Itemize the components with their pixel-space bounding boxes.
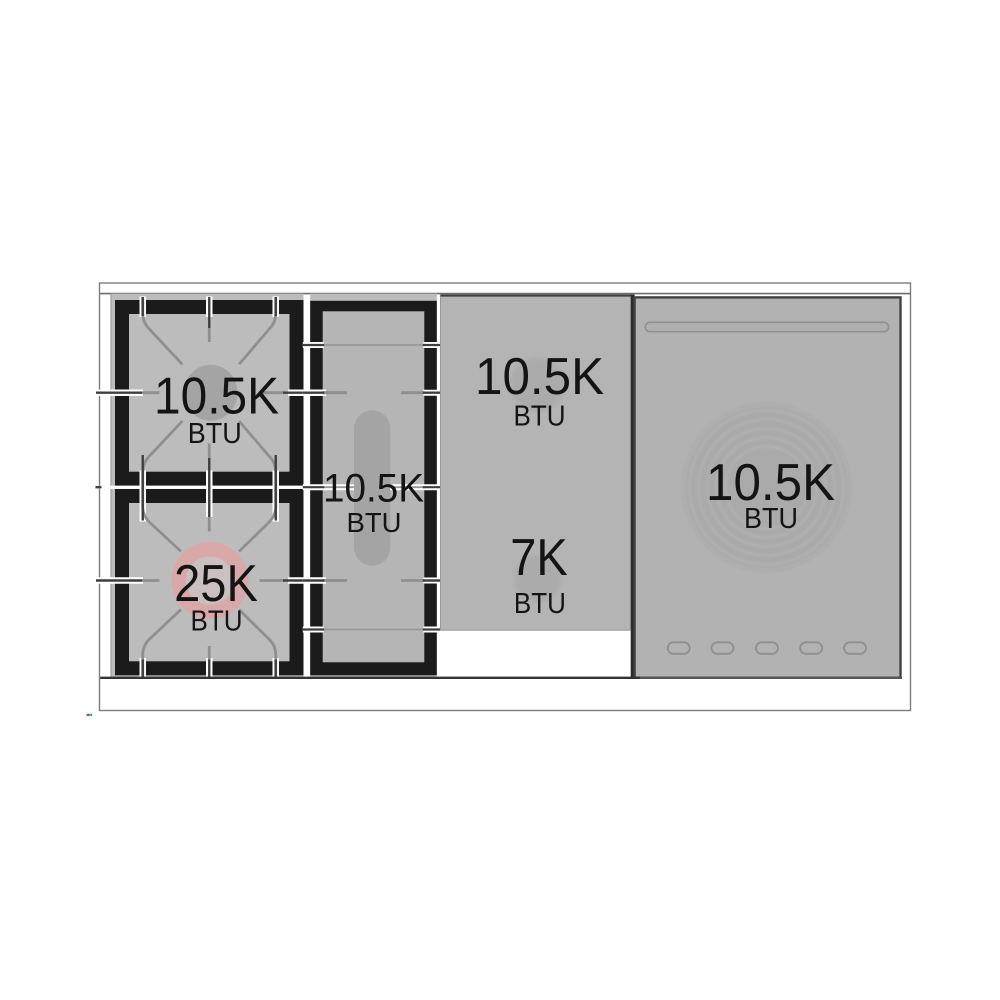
svg-text:25K: 25K xyxy=(174,555,258,613)
svg-text:10.5K: 10.5K xyxy=(323,466,424,510)
svg-text:7K: 7K xyxy=(510,529,568,587)
svg-text:BTU: BTU xyxy=(191,606,243,638)
svg-text:10.5K: 10.5K xyxy=(475,348,604,406)
svg-text:BTU: BTU xyxy=(188,418,242,450)
svg-text:BTU: BTU xyxy=(514,400,566,432)
svg-text:10.5K: 10.5K xyxy=(154,367,279,425)
svg-text:BTU: BTU xyxy=(744,503,798,535)
svg-text:BTU: BTU xyxy=(514,588,566,620)
svg-text:BTU: BTU xyxy=(347,507,402,538)
